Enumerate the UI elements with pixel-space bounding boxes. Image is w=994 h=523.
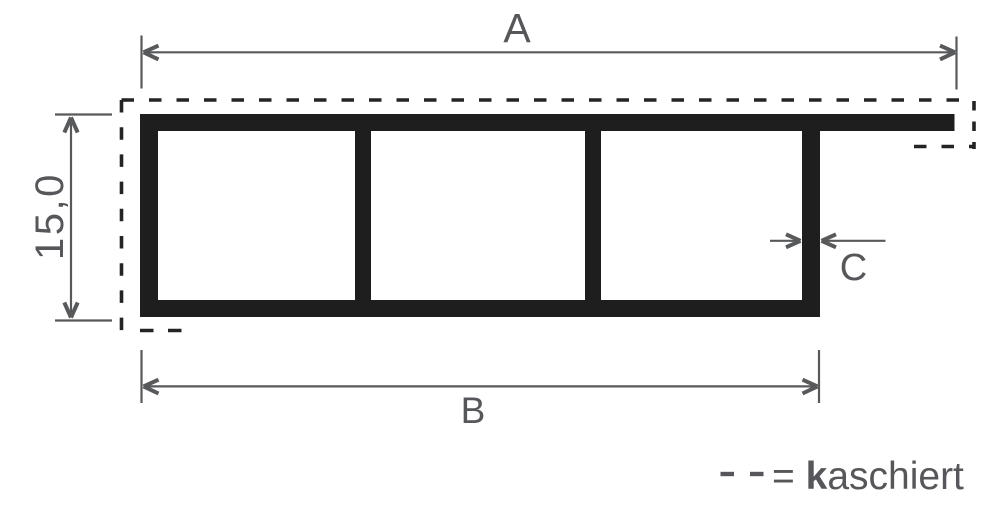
svg-text:15,0: 15,0 xyxy=(28,172,72,260)
svg-text:B: B xyxy=(461,390,486,431)
svg-text:A: A xyxy=(503,5,531,51)
svg-text:= kaschiert: = kaschiert xyxy=(772,455,964,498)
svg-text:C: C xyxy=(840,247,867,289)
